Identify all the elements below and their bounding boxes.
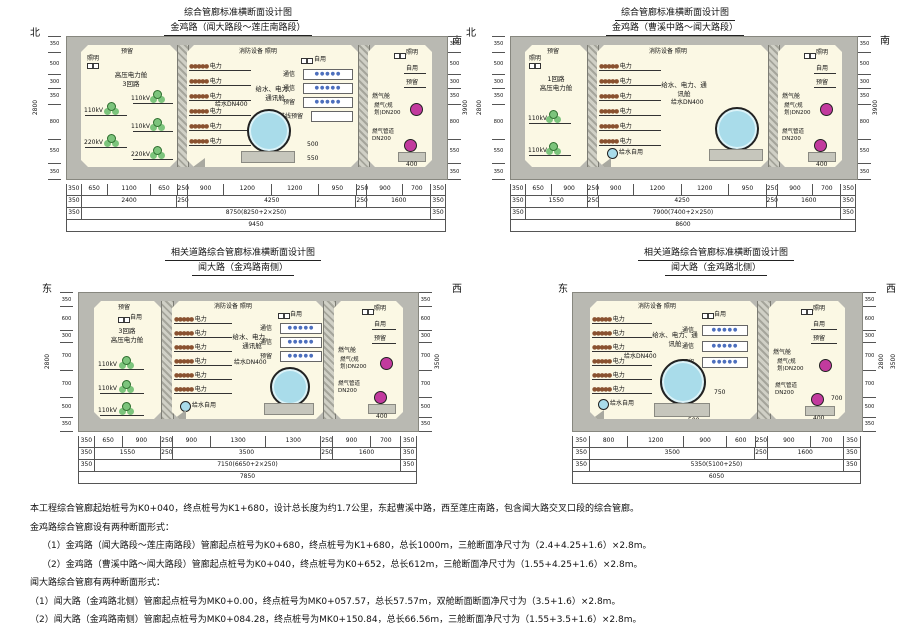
dim-value: 650 <box>525 184 551 195</box>
cable-tray: ●●●●●电力 <box>174 328 232 338</box>
hv-cable-bundle-icon <box>153 118 162 127</box>
inner-dim: 400 <box>816 161 827 168</box>
cable-tray: ●●●●●电力 <box>174 342 232 352</box>
panel-title-block: 相关道路综合管廊标准横断面设计图 闻大路（金鸡路南侧） <box>103 246 383 276</box>
self-use-label: 自用 <box>130 314 142 321</box>
dim-value: 300 <box>492 74 505 88</box>
shelf-line <box>811 329 837 330</box>
kv-label: 110kV <box>131 95 150 102</box>
power-cables-icon: ●●●●● <box>174 344 193 351</box>
cable-tray: ●●●●●电力 <box>189 136 251 146</box>
dim-value: 900 <box>172 436 210 447</box>
dim-value: 900 <box>122 436 160 447</box>
dim-value: 7850 <box>78 472 416 483</box>
dim-value: 350 <box>492 37 505 52</box>
dim-value: 250 <box>355 196 366 207</box>
lighting-fixture-icon <box>362 309 374 315</box>
dim-value: 350 <box>492 163 505 179</box>
telecom-label: 通信 <box>682 327 694 334</box>
power-cables-icon: ●●●●● <box>592 330 611 337</box>
dim-value: 350 <box>492 88 505 104</box>
dim-value: 500 <box>60 397 73 417</box>
hv-cable-bundle-icon <box>549 142 558 151</box>
direction-label-east: 东 <box>42 280 52 295</box>
dim-value: 600 <box>863 306 876 330</box>
dim-value: 600 <box>60 306 73 330</box>
power-cables-icon: ●●●●● <box>599 138 618 145</box>
dim-value: 650 <box>81 184 107 195</box>
dim-value: 950 <box>318 184 356 195</box>
dim-value: 550 <box>48 139 61 163</box>
dim-value: 500 <box>858 52 871 74</box>
hv-cable-bundle-icon <box>122 380 131 389</box>
dim-value: 350 <box>48 88 61 104</box>
hv-cable-bundle-icon <box>122 356 131 365</box>
cable-tray: ●●●●●电力 <box>599 76 661 86</box>
panel-title: 相关道路综合管廊标准横断面设计图 <box>165 246 321 261</box>
dim-row-3: 3508750(8250+2×250)350 <box>66 208 446 220</box>
dim-value: 350 <box>419 417 432 431</box>
direction-label-west: 西 <box>452 280 462 295</box>
dim-value: 350 <box>858 37 871 52</box>
cabin-combined: 消防设备 照明 ●●●●●电力 ●●●●●电力 ●●●●●电力 ●●●●●电力 … <box>172 301 323 419</box>
direction-label-north: 北 <box>466 24 476 39</box>
kv-label: 220kV <box>84 139 103 146</box>
dim-value: 250 <box>320 436 331 447</box>
power-cables-icon: ●●●●● <box>592 316 611 323</box>
cable-bracket <box>133 159 173 160</box>
tray-label: 电力 <box>195 344 207 351</box>
kv-label: 110kV <box>528 115 547 122</box>
power-cables-icon: ●●●●● <box>189 108 208 115</box>
dim-value: 350 <box>419 293 432 306</box>
dim-value: 900 <box>777 184 813 195</box>
cable-bracket <box>100 369 144 370</box>
cable-bracket <box>133 131 173 132</box>
dim-value: 350 <box>430 184 445 195</box>
dim-value: 300 <box>60 330 73 342</box>
water-main-label: 给水DN400 <box>624 353 657 360</box>
dimension-block: 3506501100650250900120012009502509007003… <box>66 184 446 232</box>
dim-row-1: 3508001200900600250900700350 <box>572 436 861 448</box>
tray-label: 电力 <box>195 358 207 365</box>
reserved-label: 预留 <box>406 79 418 86</box>
inner-dim: 500 <box>307 141 318 148</box>
dim-value: 4250 <box>598 196 766 207</box>
gas-pipe-symbol <box>819 359 832 372</box>
inner-dim: 400 <box>813 415 824 422</box>
cabin-gas: 照明 自用 预留 燃气舱 燃气(规划)DN200 燃气管道DN200 400 <box>334 301 403 419</box>
lighting-fixture-icon <box>804 53 816 59</box>
fire-lighting-label: 消防设备 照明 <box>239 48 277 55</box>
gas-pipe-label: 燃气管道DN200 <box>372 129 402 142</box>
kv-label: 110kV <box>98 361 117 368</box>
dim-value: 900 <box>767 436 810 447</box>
pipe-pedestal <box>241 151 295 163</box>
panel-title-block: 综合管廊标准横断面设计图 金鸡路（曹溪中路～闻大路段） <box>545 6 805 36</box>
dim-row-3: 3507900(7400+2×250)350 <box>510 208 856 220</box>
tray-label: 电力 <box>195 386 207 393</box>
dim-value: 8600 <box>510 220 855 231</box>
dim-value: 350 <box>510 184 525 195</box>
water-main-label: 给水DN400 <box>671 99 704 106</box>
dim-value: 1550 <box>525 196 587 207</box>
power-cables-icon: ●●●●● <box>189 63 208 70</box>
self-use-label: 自用 <box>374 321 386 328</box>
lighting-label: 照明 <box>406 49 418 56</box>
gas-pipe-symbol <box>374 391 387 404</box>
lighting-fixture-icon <box>87 63 99 69</box>
dim-row-2: 35035002501600350 <box>572 448 861 460</box>
vertical-dim-chain-left: 350500300350800550350 <box>48 36 61 180</box>
cable-tray: ●●●●●电力 <box>592 342 652 352</box>
self-use-fixture-icon <box>702 313 714 319</box>
dim-row-total: 8600 <box>510 220 856 232</box>
dim-value: 800 <box>48 104 61 139</box>
dim-value: 350 <box>843 448 860 459</box>
dim-value: 250 <box>587 184 598 195</box>
dim-value: 350 <box>572 448 589 459</box>
power-cables-icon: ●●●●● <box>174 372 193 379</box>
dimension-block: 3508001200900600250900700350 35035002501… <box>572 436 861 484</box>
pipe-pedestal <box>709 149 763 161</box>
dim-value: 700 <box>419 370 432 397</box>
fire-lighting-label: 消防设备 照明 <box>214 303 252 310</box>
dim-value: 500 <box>863 397 876 417</box>
telecom-duct-icon: ●●●●● <box>280 351 322 362</box>
dim-value: 500 <box>419 397 432 417</box>
direction-label-west: 西 <box>886 280 896 295</box>
dim-value: 350 <box>840 208 855 219</box>
dim-value: 300 <box>48 74 61 88</box>
tunnel-cross-section: 预留 自用 3回路 高压电力舱 110kV 110kV 110kV 消防设 <box>78 292 419 432</box>
panel-jinji-west: 综合管廊标准横断面设计图 金鸡路（曹溪中路～闻大路段） 北 南 35050030… <box>460 6 902 244</box>
gas-planned-label: 燃气(规划)DN200 <box>784 103 818 116</box>
dim-value: 1600 <box>366 196 430 207</box>
tray-label: 电力 <box>620 93 632 100</box>
dim-row-total: 9450 <box>66 220 446 232</box>
shelf-line <box>404 73 426 74</box>
dim-value: 8750(8250+2×250) <box>81 208 430 219</box>
gas-pipe-symbol <box>380 357 393 370</box>
dim-row-total: 6050 <box>572 472 861 484</box>
panel-title-block: 综合管廊标准横断面设计图 金鸡路（闻大路段～莲庄南路段） <box>108 6 368 36</box>
dim-value: 4250 <box>187 196 355 207</box>
gas-pipe-symbol <box>820 103 833 116</box>
dim-row-total: 7850 <box>78 472 417 484</box>
dim-value: 500 <box>48 52 61 74</box>
lighting-label: 照明 <box>816 49 828 56</box>
drawing-sheet: 综合管廊标准横断面设计图 金鸡路（闻大路段～莲庄南路段） 北 南 3505003… <box>0 0 905 634</box>
cable-tray: ●●●●●电力 <box>592 314 652 324</box>
dim-value: 1200 <box>223 184 270 195</box>
dim-value: 350 <box>430 208 445 219</box>
reserved-label: 预留 <box>547 48 559 55</box>
dim-value: 800 <box>858 104 871 139</box>
dim-value: 7150(6650+2×250) <box>94 460 400 471</box>
dim-value: 350 <box>400 460 416 471</box>
note-line: 闻大路综合管廊有两种断面形式： <box>30 574 890 593</box>
tunnel-cross-section: 预留 照明 1回路 高压电力舱 110kV 110kV 消防设备 照明 ●●●●… <box>510 36 858 180</box>
telecom-duct-icon: ●●●●● <box>280 337 322 348</box>
gas-pipe-symbol <box>410 103 423 116</box>
dim-value: 650 <box>150 184 176 195</box>
dim-value: 350 <box>510 208 525 219</box>
dim-value: 700 <box>863 370 876 397</box>
inner-dim: 400 <box>406 161 417 168</box>
lighting-label: 照明 <box>813 305 825 312</box>
cable-tray: ●●●●●电力 <box>174 314 232 324</box>
hv-cable-bundle-icon <box>107 102 116 111</box>
dim-value: 6050 <box>572 472 860 483</box>
power-cables-icon: ●●●●● <box>592 386 611 393</box>
self-use-fixture-icon <box>118 317 130 323</box>
self-use-fixture-icon <box>301 58 313 64</box>
dim-row-3: 3507150(6650+2×250)350 <box>78 460 417 472</box>
note-line: 本工程综合管廊起始桩号为K0+040，终点桩号为K1+680，设计总长度为约1.… <box>30 500 890 519</box>
cabin-gas: 照明 自用 预留 燃气舱 燃气(规划)DN200 燃气管道DN200 400 <box>368 45 432 167</box>
power-cables-icon: ●●●●● <box>174 358 193 365</box>
telecom-duct-icon: ●●●●● <box>702 325 748 336</box>
tunnel-cross-section: 预留 照明 高压电力舱 3回路 110kV 220kV 110kV 110kV <box>66 36 448 180</box>
tray-label: 电力 <box>210 78 222 85</box>
water-self-label: 给水自用 <box>619 149 643 156</box>
dim-row-1: 35065090025090013001300250900700350 <box>78 436 417 448</box>
dim-value: 350 <box>863 293 876 306</box>
dim-value: 650 <box>94 436 122 447</box>
lighting-label: 照明 <box>374 305 386 312</box>
dim-value: 350 <box>510 196 525 207</box>
dim-value: 1200 <box>627 436 683 447</box>
dim-value: 250 <box>356 184 367 195</box>
dim-value: 350 <box>400 436 416 447</box>
telecom-label: 通信 <box>283 85 295 92</box>
direction-label-south: 南 <box>880 32 890 47</box>
cabin-name-line2: 高压电力舱 <box>96 336 158 345</box>
dim-value: 9450 <box>66 220 445 231</box>
cable-bracket <box>100 415 144 416</box>
dim-value: 350 <box>48 163 61 179</box>
dim-value: 900 <box>551 184 587 195</box>
dim-row-1: 35065090025090012001200950250900700350 <box>510 184 856 196</box>
dim-value: 5350(5100+250) <box>589 460 842 471</box>
dim-value: 350 <box>78 448 94 459</box>
cable-tray: ●●●●●电力 <box>592 384 652 394</box>
lighting-fixture-icon <box>529 63 541 69</box>
drain-gutter-icon <box>592 410 604 419</box>
self-use-label: 自用 <box>816 65 828 72</box>
dim-value: 550 <box>858 139 871 163</box>
inner-dim: 550 <box>307 155 318 162</box>
note-line: （2）金鸡路（曹溪中路～闻大路段）管廊起点桩号为K0+040，终点桩号为K0+6… <box>30 556 890 575</box>
hv-cable-bundle-icon <box>153 146 162 155</box>
water-self-label: 给水自用 <box>610 400 634 407</box>
gas-pipe-symbol <box>814 139 827 152</box>
shelf-line <box>814 87 836 88</box>
dim-value: 350 <box>858 88 871 104</box>
tray-label: 电力 <box>210 108 222 115</box>
cabin-name: 燃气舱 <box>773 349 791 356</box>
dim-value: 600 <box>419 306 432 330</box>
power-cables-icon: ●●●●● <box>592 372 611 379</box>
cabin-name-line2: 高压电力舱 <box>527 84 585 93</box>
shelf-line <box>404 87 426 88</box>
panel-title-block: 相关道路综合管廊标准横断面设计图 闻大路（金鸡路北侧） <box>576 246 856 276</box>
cabin-hv-power: 预留 照明 高压电力舱 3回路 110kV 220kV 110kV 110kV <box>81 45 177 167</box>
gas-pipe-symbol <box>811 393 824 406</box>
note-line: （1）金鸡路（闻大路段～莲庄南路段）管廊起点桩号为K0+680，终点桩号为K1+… <box>30 537 890 556</box>
tray-label: 电力 <box>620 78 632 85</box>
dim-value: 350 <box>400 448 416 459</box>
dim-value: 350 <box>840 196 855 207</box>
cabin-name: 高压电力舱 3回路 <box>101 71 161 89</box>
telecom-label: 通信 <box>283 71 295 78</box>
cable-bracket <box>85 115 127 116</box>
kv-label: 110kV <box>98 385 117 392</box>
gas-planned-label: 燃气(规划)DN200 <box>374 103 408 116</box>
vertical-total-outer: 3900 <box>872 100 879 115</box>
cabin-hv-power: 预留 自用 3回路 高压电力舱 110kV 110kV 110kV <box>94 301 161 419</box>
power-cables-icon: ●●●●● <box>174 386 193 393</box>
panel-jinji-east: 综合管廊标准横断面设计图 金鸡路（闻大路段～莲庄南路段） 北 南 3505003… <box>28 6 468 244</box>
shelf-line <box>372 329 396 330</box>
dim-value: 350 <box>66 184 81 195</box>
tray-label: 电力 <box>620 108 632 115</box>
reserved-label: 预留 <box>816 79 828 86</box>
panel-subtitle: 闻大路（金鸡路南侧） <box>192 261 294 276</box>
shelf-line <box>811 343 837 344</box>
dim-value: 350 <box>863 417 876 431</box>
cabin-name: 燃气舱 <box>338 347 356 354</box>
dim-value: 250 <box>160 448 172 459</box>
dim-value: 700 <box>863 342 876 369</box>
cabin-name: 燃气舱 <box>372 93 390 100</box>
vertical-total-outer: 3500 <box>434 354 441 369</box>
cabin-gas: 照明 自用 预留 燃气舱 燃气(规划)DN200 燃气管道DN200 400 7… <box>769 301 845 419</box>
water-pipe-symbol <box>247 109 291 153</box>
dim-value: 800 <box>492 104 505 139</box>
power-cables-icon: ●●●●● <box>599 108 618 115</box>
self-use-label: 自用 <box>406 65 418 72</box>
tray-label: 电力 <box>620 123 632 130</box>
dim-value: 1200 <box>271 184 318 195</box>
panel-subtitle: 闻大路（金鸡路北侧） <box>665 261 767 276</box>
cabin-combined: 消防设备 照明 ●●●●●电力 ●●●●●电力 ●●●●●电力 ●●●●●电力 … <box>187 45 358 167</box>
dim-value: 1300 <box>210 436 265 447</box>
lighting-fixture-icon <box>394 53 406 59</box>
note-line: 金鸡路综合管廊设有两种断面形式： <box>30 519 890 538</box>
tray-label: 电力 <box>210 138 222 145</box>
pipe-pedestal <box>654 403 710 417</box>
vertical-dim-chain-right: 350600300700700500350 <box>419 292 432 432</box>
reserved-label: 预留 <box>118 304 130 311</box>
dim-value: 350 <box>48 37 61 52</box>
vertical-dim-chain-left: 350600300700700500350 <box>60 292 73 432</box>
dim-value: 350 <box>78 436 94 447</box>
reserved-label: 预留 <box>283 99 295 106</box>
cabin-name-line1: 高压电力舱 <box>101 71 161 80</box>
dim-value: 700 <box>60 342 73 369</box>
cable-tray: ●●●●●电力 <box>189 121 251 131</box>
dim-value: 350 <box>60 417 73 431</box>
cabin-wall <box>757 301 771 419</box>
cable-bracket <box>133 103 173 104</box>
power-cables-icon: ●●●●● <box>189 123 208 130</box>
power-cables-icon: ●●●●● <box>592 344 611 351</box>
cable-tray: ●●●●●电力 <box>174 356 232 366</box>
dim-value: 700 <box>370 436 400 447</box>
shelf-line <box>372 343 396 344</box>
gas-pipe-label: 燃气管道DN200 <box>338 381 370 394</box>
dim-value: 900 <box>332 436 370 447</box>
vertical-total-inner: 2800 <box>878 354 885 369</box>
cabin-name-line1: 3回路 <box>96 327 158 336</box>
power-cables-icon: ●●●●● <box>189 138 208 145</box>
dim-value: 250 <box>177 184 188 195</box>
hv-cable-bundle-icon <box>549 110 558 119</box>
dim-value: 350 <box>572 460 589 471</box>
tray-label: 电力 <box>613 316 625 323</box>
self-use-label: 自用 <box>714 311 726 318</box>
dim-row-1: 3506501100650250900120012009502509007003… <box>66 184 446 196</box>
dimension-block: 35065090025090012001200950250900700350 3… <box>510 184 856 232</box>
cabin-combined: 消防设备 照明 ●●●●●电力 ●●●●●电力 ●●●●●电力 ●●●●●电力 … <box>597 45 768 167</box>
dim-value: 250 <box>160 436 171 447</box>
self-use-label: 自用 <box>314 56 326 63</box>
telecom-duct-icon: ●●●●● <box>702 357 748 368</box>
gas-pipe-symbol <box>404 139 417 152</box>
tray-label: 电力 <box>195 316 207 323</box>
pipe-pedestal <box>264 403 314 415</box>
dim-value: 250 <box>320 448 332 459</box>
vertical-dim-chain-left: 350500300350800550350 <box>492 36 505 180</box>
power-cables-icon: ●●●●● <box>599 78 618 85</box>
cable-tray: ●●●●●电力 <box>599 136 661 146</box>
dim-value: 1600 <box>767 448 843 459</box>
dim-value: 1600 <box>776 196 840 207</box>
panel-title: 综合管廊标准横断面设计图 <box>178 6 298 21</box>
kv-label: 110kV <box>98 407 117 414</box>
dim-value: 900 <box>187 184 223 195</box>
kv-label: 110kV <box>131 123 150 130</box>
dim-value: 1600 <box>332 448 400 459</box>
kv-label: 220kV <box>131 151 150 158</box>
dim-value: 250 <box>766 184 777 195</box>
lighting-fixture-icon <box>801 309 813 315</box>
dim-value: 550 <box>492 139 505 163</box>
telecom-label: 通信 <box>682 343 694 350</box>
power-cables-icon: ●●●●● <box>174 316 193 323</box>
cable-bracket <box>100 393 144 394</box>
dim-value: 350 <box>66 208 81 219</box>
water-self-pipe-symbol <box>598 399 609 410</box>
cable-tray: ●●●●●电力 <box>599 61 661 71</box>
power-cables-icon: ●●●●● <box>189 78 208 85</box>
water-self-label: 给水自用 <box>192 402 216 409</box>
reserved-duct <box>311 111 353 122</box>
self-use-label: 自用 <box>813 321 825 328</box>
cabin-gas: 照明 自用 预留 燃气舱 燃气(规划)DN200 燃气管道DN200 400 <box>778 45 842 167</box>
panel-wenda-south: 相关道路综合管廊标准横断面设计图 闻大路（金鸡路南侧） 东 西 35060030… <box>28 246 468 490</box>
tray-label: 电力 <box>210 63 222 70</box>
reserved-label: 预留 <box>374 335 386 342</box>
lighting-label: 照明 <box>529 55 541 62</box>
panel-title: 综合管廊标准横断面设计图 <box>615 6 735 21</box>
kv-label: 110kV <box>528 147 547 154</box>
gas-planned-label: 燃气(规划)DN200 <box>777 359 815 372</box>
vertical-total-inner: 2800 <box>476 100 483 115</box>
dim-value: 600 <box>726 436 755 447</box>
